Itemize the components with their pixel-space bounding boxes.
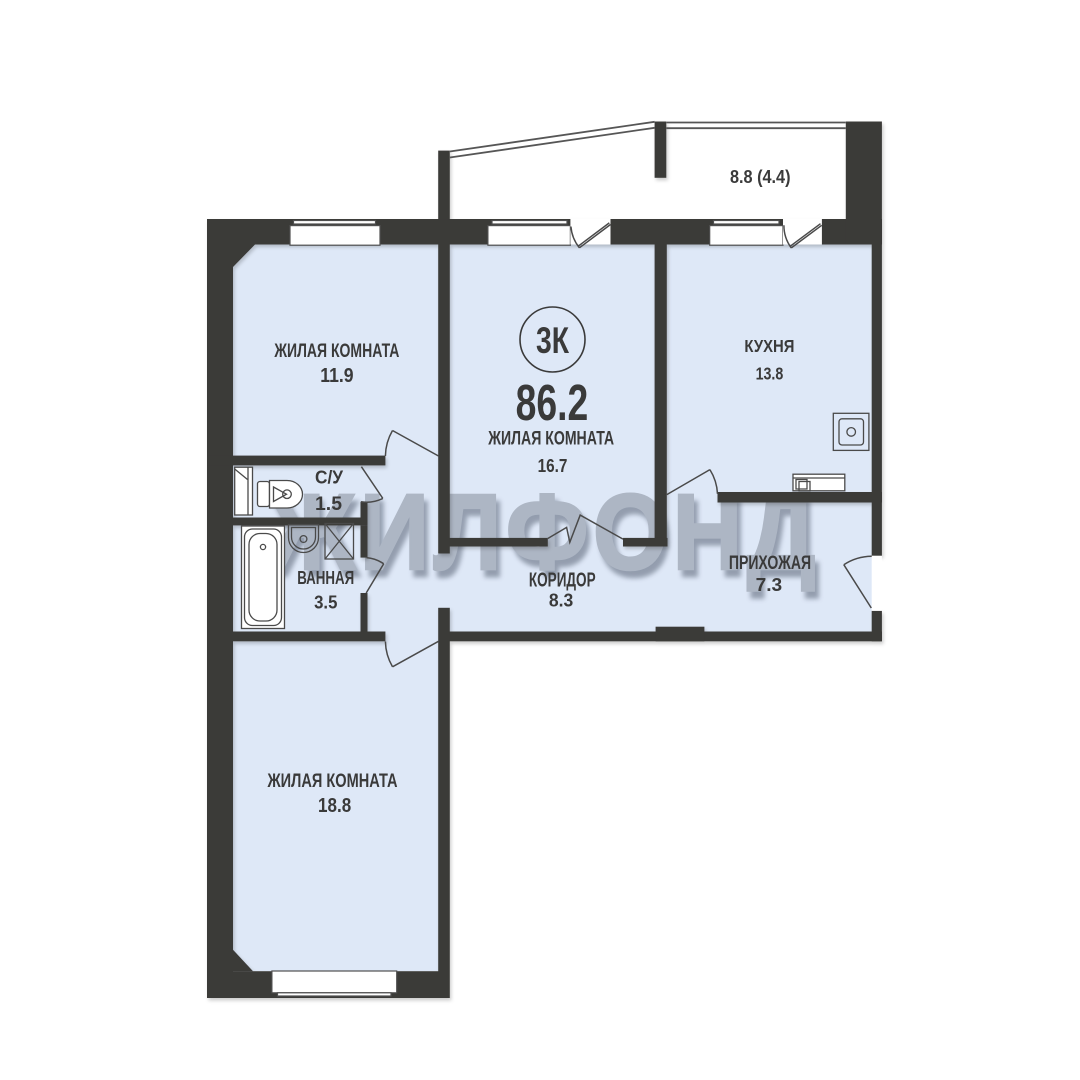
svg-text:11.9: 11.9	[320, 365, 353, 387]
svg-text:7.3: 7.3	[756, 575, 783, 595]
svg-text:8.3: 8.3	[549, 591, 573, 611]
svg-text:ЖИЛАЯ КОМНАТА: ЖИЛАЯ КОМНАТА	[267, 770, 398, 792]
svg-text:3.5: 3.5	[314, 593, 337, 613]
svg-text:ЖИЛАЯ КОМНАТА: ЖИЛАЯ КОМНАТА	[274, 340, 400, 362]
svg-text:13.8: 13.8	[756, 364, 784, 384]
svg-text:1.5: 1.5	[315, 494, 342, 515]
svg-text:16.7: 16.7	[538, 456, 568, 476]
svg-text:КОРИДОР: КОРИДОР	[529, 570, 596, 592]
svg-text:8.8 (4.4): 8.8 (4.4)	[730, 166, 791, 187]
svg-text:ВАННАЯ: ВАННАЯ	[297, 568, 354, 588]
svg-text:КУХНЯ: КУХНЯ	[744, 336, 794, 356]
svg-text:ПРИХОЖАЯ: ПРИХОЖАЯ	[729, 552, 811, 574]
svg-text:С/У: С/У	[315, 467, 344, 487]
svg-text:3К: 3К	[536, 320, 569, 361]
svg-text:18.8: 18.8	[318, 795, 351, 817]
svg-text:ЖИЛАЯ КОМНАТА: ЖИЛАЯ КОМНАТА	[488, 428, 615, 450]
svg-text:86.2: 86.2	[516, 374, 589, 431]
